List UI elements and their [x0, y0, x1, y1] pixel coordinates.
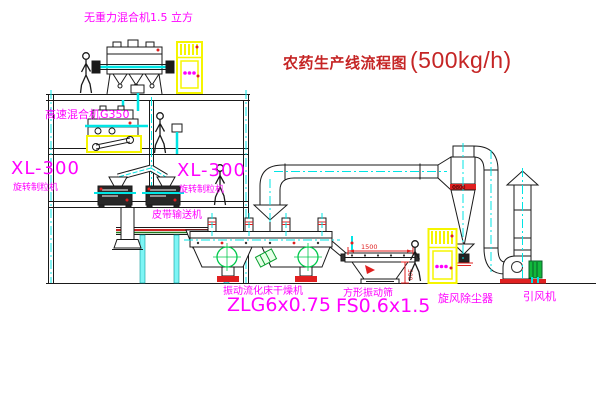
label-granulator-right-name: 旋转制粒机	[179, 186, 224, 195]
fan-suction-duct	[484, 170, 505, 274]
granulator-right-unit	[142, 177, 184, 208]
discharge-chute	[112, 208, 143, 250]
label-belt-conveyor: 皮带输送机	[152, 211, 202, 221]
label-granulator-right-model: XL-300	[177, 162, 246, 180]
pfd-canvas: Φ800	[0, 0, 600, 403]
indicator-lights-icon	[435, 265, 448, 269]
label-cyclone: 旋风除尘器	[438, 293, 493, 304]
vibrating-screen-unit: 1500 500	[341, 236, 419, 284]
label-high-speed-mixer: 高速混合机G350	[45, 109, 130, 120]
label-dryer-model: ZLG6x0.75	[227, 296, 331, 315]
person-figure	[81, 53, 92, 93]
drawing-title-text: 农药生产线流程图	[283, 52, 407, 73]
dryer-top-nozzles	[208, 218, 326, 232]
indicator-dot	[196, 46, 199, 49]
indicator-dot	[450, 267, 453, 270]
label-fan: 引风机	[523, 291, 556, 302]
drawing-title-capacity: (500kg/h)	[410, 47, 512, 74]
fan-motor	[529, 261, 542, 278]
control-cabinet-top	[177, 42, 202, 93]
control-cabinet-ground	[429, 229, 457, 283]
granulator-feed-pipes	[118, 168, 166, 177]
label-screen-model: FS0.6x1.5	[336, 297, 430, 316]
granulator-left-unit	[94, 177, 136, 208]
indicator-dot	[451, 235, 454, 238]
label-granulator-left-model: XL-300	[11, 160, 80, 178]
drawing-title: 农药生产线流程图 (500kg/h)	[283, 47, 512, 74]
label-granulator-left-name: 旋转制粒机	[13, 184, 58, 193]
indicator-lights-icon	[183, 71, 196, 75]
person-figure	[155, 113, 166, 153]
indicator-dot	[197, 75, 200, 78]
screen-length-dim: 1500	[361, 243, 378, 251]
label-gravity-mixer: 无重力混合机1.5 立方	[84, 12, 193, 23]
